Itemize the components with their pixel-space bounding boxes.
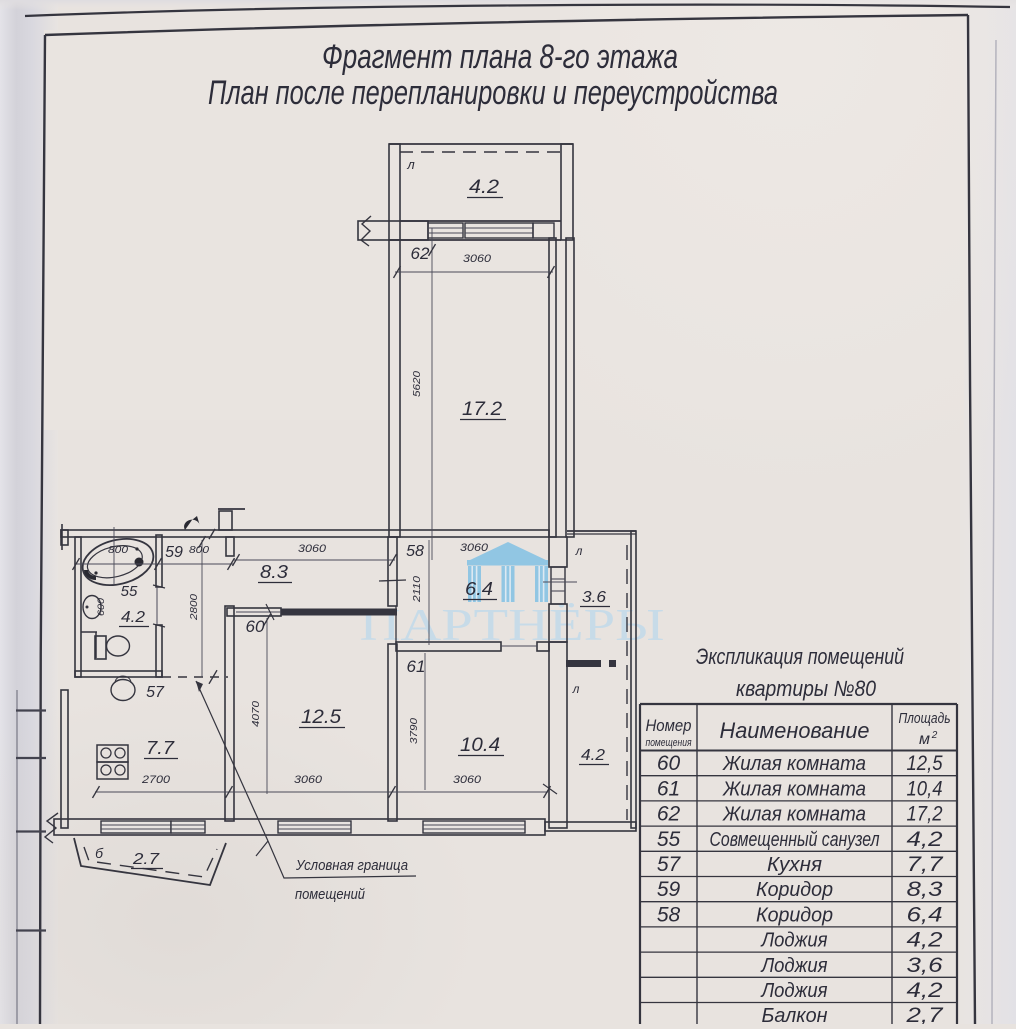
svg-text:Фрагмент плана 8-го этажа: Фрагмент плана 8-го этажа <box>322 38 678 76</box>
svg-text:3060: 3060 <box>463 253 492 265</box>
svg-text:10.4: 10.4 <box>460 735 500 756</box>
svg-text:59: 59 <box>657 878 681 901</box>
svg-text:Площадь: Площадь <box>899 710 951 727</box>
svg-text:4070: 4070 <box>251 700 262 727</box>
svg-text:58: 58 <box>406 543 424 560</box>
svg-text:5620: 5620 <box>412 370 423 397</box>
svg-text:62: 62 <box>657 803 681 826</box>
svg-text:Коридор: Коридор <box>756 879 833 901</box>
svg-text:4.2: 4.2 <box>121 609 145 626</box>
svg-text:2: 2 <box>931 730 938 741</box>
svg-text:3060: 3060 <box>453 774 482 786</box>
svg-text:4,2: 4,2 <box>907 828 943 851</box>
svg-text:6,4: 6,4 <box>907 903 943 926</box>
svg-text:помещения: помещения <box>646 737 692 749</box>
svg-text:17,2: 17,2 <box>907 803 943 826</box>
svg-text:3060: 3060 <box>298 543 327 555</box>
svg-text:4.2: 4.2 <box>469 177 499 198</box>
svg-text:Балкон: Балкон <box>762 1005 828 1024</box>
svg-text:59: 59 <box>165 544 183 561</box>
svg-text:Жилая комната: Жилая комната <box>722 804 866 826</box>
svg-text:2.7: 2.7 <box>132 851 160 868</box>
svg-text:12.5: 12.5 <box>301 707 341 728</box>
svg-text:4.2: 4.2 <box>581 747 605 764</box>
svg-text:7.7: 7.7 <box>146 738 175 758</box>
svg-text:квартиры №80: квартиры №80 <box>736 676 877 701</box>
svg-text:л: л <box>575 544 583 558</box>
svg-text:57: 57 <box>146 684 165 701</box>
svg-text:Экспликация помещений: Экспликация помещений <box>696 644 904 669</box>
svg-text:л: л <box>406 157 415 172</box>
svg-text:55: 55 <box>121 583 138 600</box>
svg-text:3,6: 3,6 <box>907 954 943 977</box>
svg-text:Кухня: Кухня <box>767 854 822 876</box>
svg-text:6.4: 6.4 <box>465 579 493 599</box>
svg-text:Совмещенный санузел: Совмещенный санузел <box>710 829 880 851</box>
svg-text:3060: 3060 <box>460 542 489 554</box>
svg-text:62: 62 <box>411 244 430 263</box>
svg-text:61: 61 <box>407 657 426 676</box>
svg-text:м: м <box>919 731 930 748</box>
svg-text:7,7: 7,7 <box>907 853 945 876</box>
svg-text:3060: 3060 <box>294 774 323 786</box>
svg-text:Номер: Номер <box>646 716 692 735</box>
svg-text:600: 600 <box>96 598 106 616</box>
svg-text:План после перепланировки и пе: План после перепланировки и переустройст… <box>208 74 778 112</box>
svg-text:л: л <box>572 682 580 696</box>
svg-text:2800: 2800 <box>189 593 200 621</box>
svg-text:58: 58 <box>657 903 681 926</box>
svg-text:3790: 3790 <box>409 717 420 744</box>
svg-text:Условная граница: Условная граница <box>295 857 408 874</box>
svg-text:57: 57 <box>657 853 682 876</box>
svg-text:10,4: 10,4 <box>907 777 943 800</box>
svg-text:60: 60 <box>246 617 265 636</box>
svg-text:б: б <box>95 845 104 861</box>
svg-text:2,7: 2,7 <box>905 1004 944 1024</box>
svg-text:Жилая комната: Жилая комната <box>722 778 866 800</box>
svg-text:8.3: 8.3 <box>260 562 288 582</box>
svg-text:Наименование: Наименование <box>720 718 870 743</box>
svg-text:3.6: 3.6 <box>582 589 606 606</box>
svg-text:800: 800 <box>108 545 129 556</box>
svg-text:Лоджия: Лоджия <box>760 980 828 1002</box>
svg-text:Коридор: Коридор <box>756 904 833 926</box>
svg-text:61: 61 <box>657 777 680 800</box>
svg-text:55: 55 <box>657 828 681 851</box>
svg-text:4,2: 4,2 <box>907 979 943 1002</box>
svg-text:Жилая комната: Жилая комната <box>722 753 866 775</box>
svg-text:Лоджия: Лоджия <box>760 955 828 977</box>
svg-text:800: 800 <box>189 545 210 556</box>
svg-text:4,2: 4,2 <box>907 929 943 952</box>
svg-text:12,5: 12,5 <box>907 752 943 775</box>
svg-text:Лоджия: Лоджия <box>760 930 828 952</box>
svg-text:2700: 2700 <box>141 774 171 786</box>
svg-text:60: 60 <box>657 752 681 775</box>
svg-text:2110: 2110 <box>412 575 423 603</box>
svg-text:помещений: помещений <box>295 886 366 903</box>
svg-text:17.2: 17.2 <box>462 399 502 420</box>
svg-text:8,3: 8,3 <box>907 878 943 901</box>
